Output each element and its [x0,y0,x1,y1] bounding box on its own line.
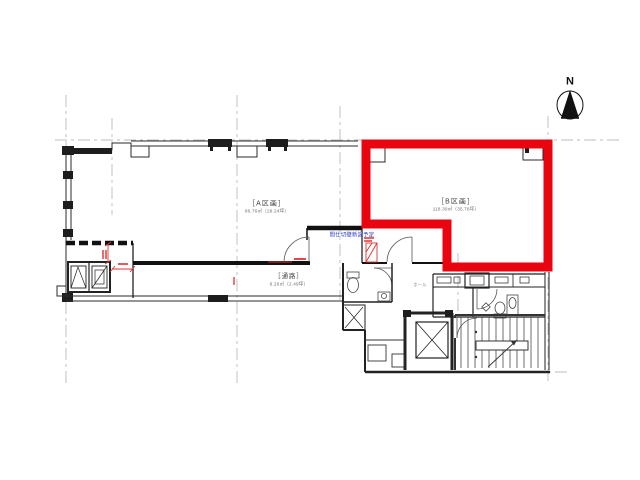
service-rooms [365,340,405,367]
interior-walls-left [66,228,447,298]
fire-hydrant [364,238,377,262]
elevator-shaft [403,310,453,370]
hall-label: ホール [413,284,427,289]
grid-lines [55,95,622,385]
room-area-corridor: 8.26㎡（2.49坪） [270,283,309,288]
north-arrow-icon [557,90,583,119]
room-label-b: ［B区画］ [437,199,475,206]
staircase [455,315,545,370]
floor-plan-page: N ［A区画］ 86.76㎡（26.24坪） ［B区画］ 118.30㎡（35.… [0,0,640,480]
floor-plan-drawing [0,0,640,480]
partition-annotation: 間仕切壁新設予定 [330,233,375,238]
left-elevator-shafts [68,262,110,292]
room-area-a: 86.76㎡（26.24坪） [245,210,289,215]
core-walls [343,263,550,372]
highlight-outline-b-section [366,144,548,267]
room-label-a: ［A区画］ [248,201,286,208]
room-area-b: 118.30㎡（35.78坪） [433,208,480,213]
room-label-corridor: ［通路］ [274,274,303,280]
north-label: N [566,77,574,88]
